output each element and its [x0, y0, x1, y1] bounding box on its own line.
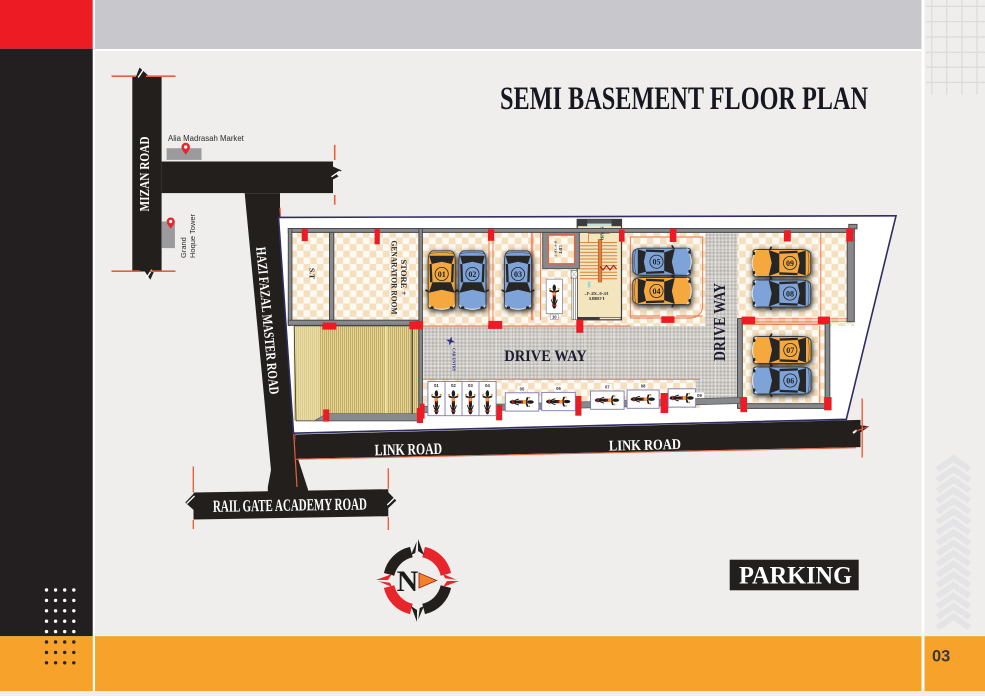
svg-text:07: 07 — [786, 346, 794, 355]
svg-text:02: 02 — [451, 383, 456, 388]
svg-text:08: 08 — [786, 289, 794, 298]
svg-text:Alia Madrasah Market: Alia Madrasah Market — [168, 134, 245, 143]
svg-text:02: 02 — [468, 270, 476, 279]
svg-text:09: 09 — [697, 393, 702, 398]
svg-text:PARKING: PARKING — [739, 563, 852, 590]
svg-text:STORE +: STORE + — [399, 260, 409, 296]
svg-text:8'-4"X8'-7": 8'-4"X8'-7" — [554, 241, 558, 258]
svg-text:DRIVE WAY: DRIVE WAY — [504, 348, 587, 365]
svg-text:03: 03 — [468, 383, 473, 388]
svg-text:07: 07 — [605, 385, 610, 390]
svg-text:MIZAN ROAD: MIZAN ROAD — [138, 137, 153, 212]
svg-text:05: 05 — [653, 258, 661, 267]
svg-text:LIFT: LIFT — [558, 245, 562, 254]
svg-text:03: 03 — [514, 270, 522, 279]
svg-text:SEMI BASEMENT FLOOR PLAN: SEMI BASEMENT FLOOR PLAN — [500, 81, 868, 117]
svg-text:08: 08 — [641, 384, 646, 389]
svg-text:04: 04 — [485, 383, 490, 388]
svg-text:04: 04 — [653, 287, 661, 296]
svg-text:Grand: Grand — [179, 237, 188, 258]
svg-text:S.T: S.T — [308, 268, 317, 279]
svg-text:Hoque Tower: Hoque Tower — [188, 213, 197, 258]
svg-text:06: 06 — [786, 376, 794, 385]
svg-text:03: 03 — [932, 648, 950, 666]
svg-text:LINK ROAD: LINK ROAD — [609, 437, 682, 455]
svg-text:10: 10 — [552, 314, 557, 319]
svg-text:N: N — [397, 565, 419, 598]
svg-text:CAR ENTRY: CAR ENTRY — [451, 348, 456, 372]
svg-text:19'-0"X8'-4": 19'-0"X8'-4" — [584, 291, 608, 296]
svg-text:LINK ROAD: LINK ROAD — [374, 441, 442, 460]
svg-text:01: 01 — [434, 383, 439, 388]
svg-text:GENARATOR ROOM: GENARATOR ROOM — [390, 241, 400, 315]
svg-text:06: 06 — [556, 386, 561, 391]
svg-text:DRIVE WAY: DRIVE WAY — [710, 283, 729, 361]
svg-text:09: 09 — [786, 259, 794, 268]
svg-text:RAIL GATE ACADEMY ROAD: RAIL GATE ACADEMY ROAD — [213, 494, 367, 515]
svg-text:01: 01 — [438, 270, 446, 279]
svg-text:05: 05 — [520, 387, 525, 392]
